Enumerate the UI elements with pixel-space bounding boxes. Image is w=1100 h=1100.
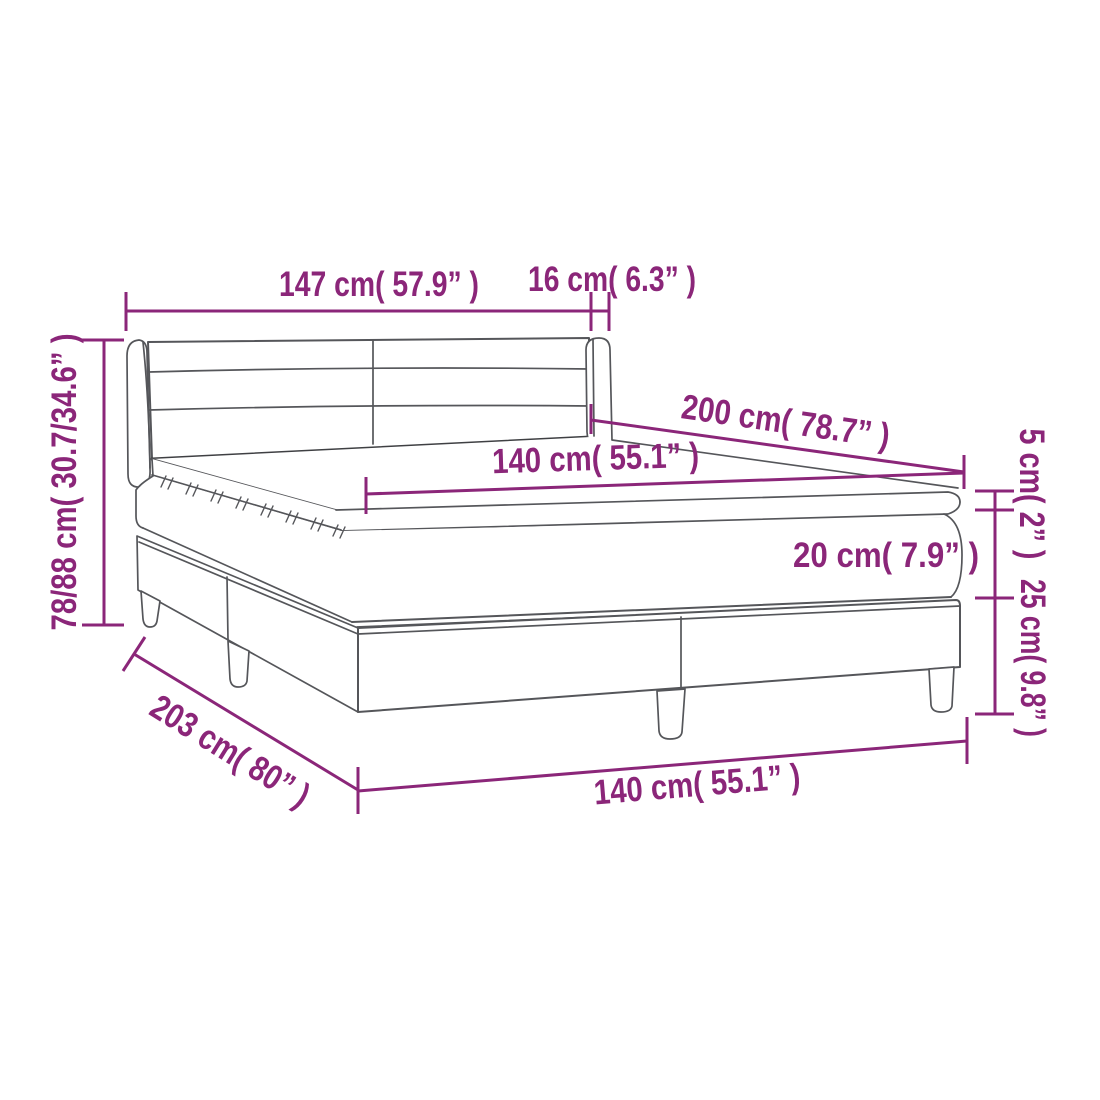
svg-text:20 cm( 7.9” ): 20 cm( 7.9” ) (793, 536, 979, 575)
svg-text:16 cm( 6.3” ): 16 cm( 6.3” ) (528, 260, 696, 299)
svg-text:25 cm( 9.8” ): 25 cm( 9.8” ) (1013, 579, 1052, 737)
svg-text:147 cm( 57.9” ): 147 cm( 57.9” ) (279, 265, 479, 304)
svg-text:5 cm( 2” ): 5 cm( 2” ) (1012, 429, 1051, 560)
svg-text:78/88 cm( 30.7/34.6” ): 78/88 cm( 30.7/34.6” ) (45, 334, 84, 631)
svg-text:140 cm( 55.1” ): 140 cm( 55.1” ) (492, 436, 700, 481)
